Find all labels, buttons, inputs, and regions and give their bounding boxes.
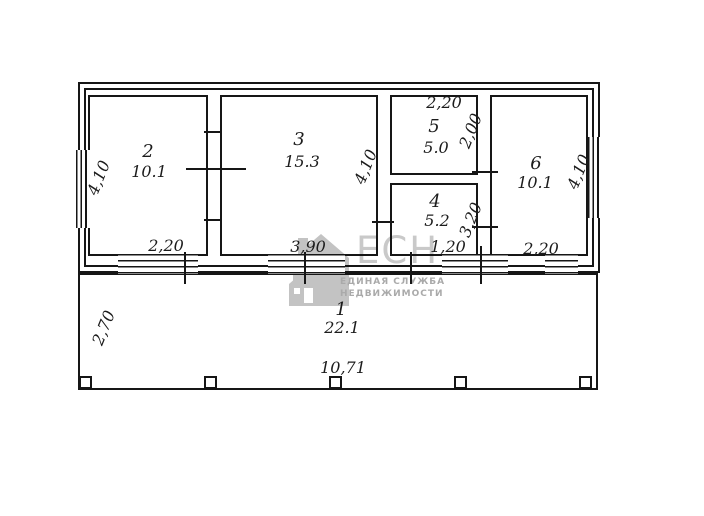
room-6-area: 10.1 <box>517 175 553 191</box>
veranda-post-2 <box>204 376 217 389</box>
tick-bottom-3 <box>410 252 412 284</box>
room-2-area: 10.1 <box>131 164 167 180</box>
dim-room3-bottom: 3,90 <box>290 239 326 255</box>
tick-wall345 <box>372 221 394 223</box>
window-bottom-room3 <box>268 254 345 274</box>
tick-bottom-2 <box>304 252 306 284</box>
room-3-area: 15.3 <box>284 154 320 170</box>
tick-wall456-upper <box>472 171 498 173</box>
window-bottom-room4 <box>442 254 508 274</box>
tick-wall23-lower <box>204 219 222 221</box>
dim-room5-top: 2,20 <box>426 95 462 111</box>
floor-plan: ЕСН ЕДИНАЯ СЛУЖБА НЕДВИЖИМОСТИ 2 10.1 3 … <box>0 0 704 516</box>
room-1-number: 1 <box>335 301 346 319</box>
room-2-number: 2 <box>142 143 153 161</box>
tick-bottom-1 <box>184 252 186 284</box>
room-3-number: 3 <box>293 131 304 149</box>
room-5-number: 5 <box>428 118 439 136</box>
room-4-number: 4 <box>429 193 440 211</box>
dim-total-width: 10,71 <box>320 360 366 376</box>
room-6-number: 6 <box>530 155 541 173</box>
veranda-post-5 <box>579 376 592 389</box>
dim-room2-bottom: 2,20 <box>148 238 184 254</box>
veranda-post-3 <box>329 376 342 389</box>
room-5-area: 5.0 <box>423 140 448 156</box>
veranda-post-1 <box>79 376 92 389</box>
tick-wall23-upper <box>204 131 222 133</box>
axis-line-wall23 <box>186 168 246 170</box>
window-bottom-room2 <box>118 254 198 274</box>
room-4-area: 5.2 <box>424 213 449 229</box>
tick-bottom-4 <box>480 246 482 284</box>
dim-room6-bottom: 2,20 <box>523 241 559 257</box>
veranda-post-4 <box>454 376 467 389</box>
room-1-area: 22.1 <box>324 320 360 336</box>
window-room6-right <box>588 137 602 218</box>
dim-room4-bottom: 1,20 <box>430 239 466 255</box>
